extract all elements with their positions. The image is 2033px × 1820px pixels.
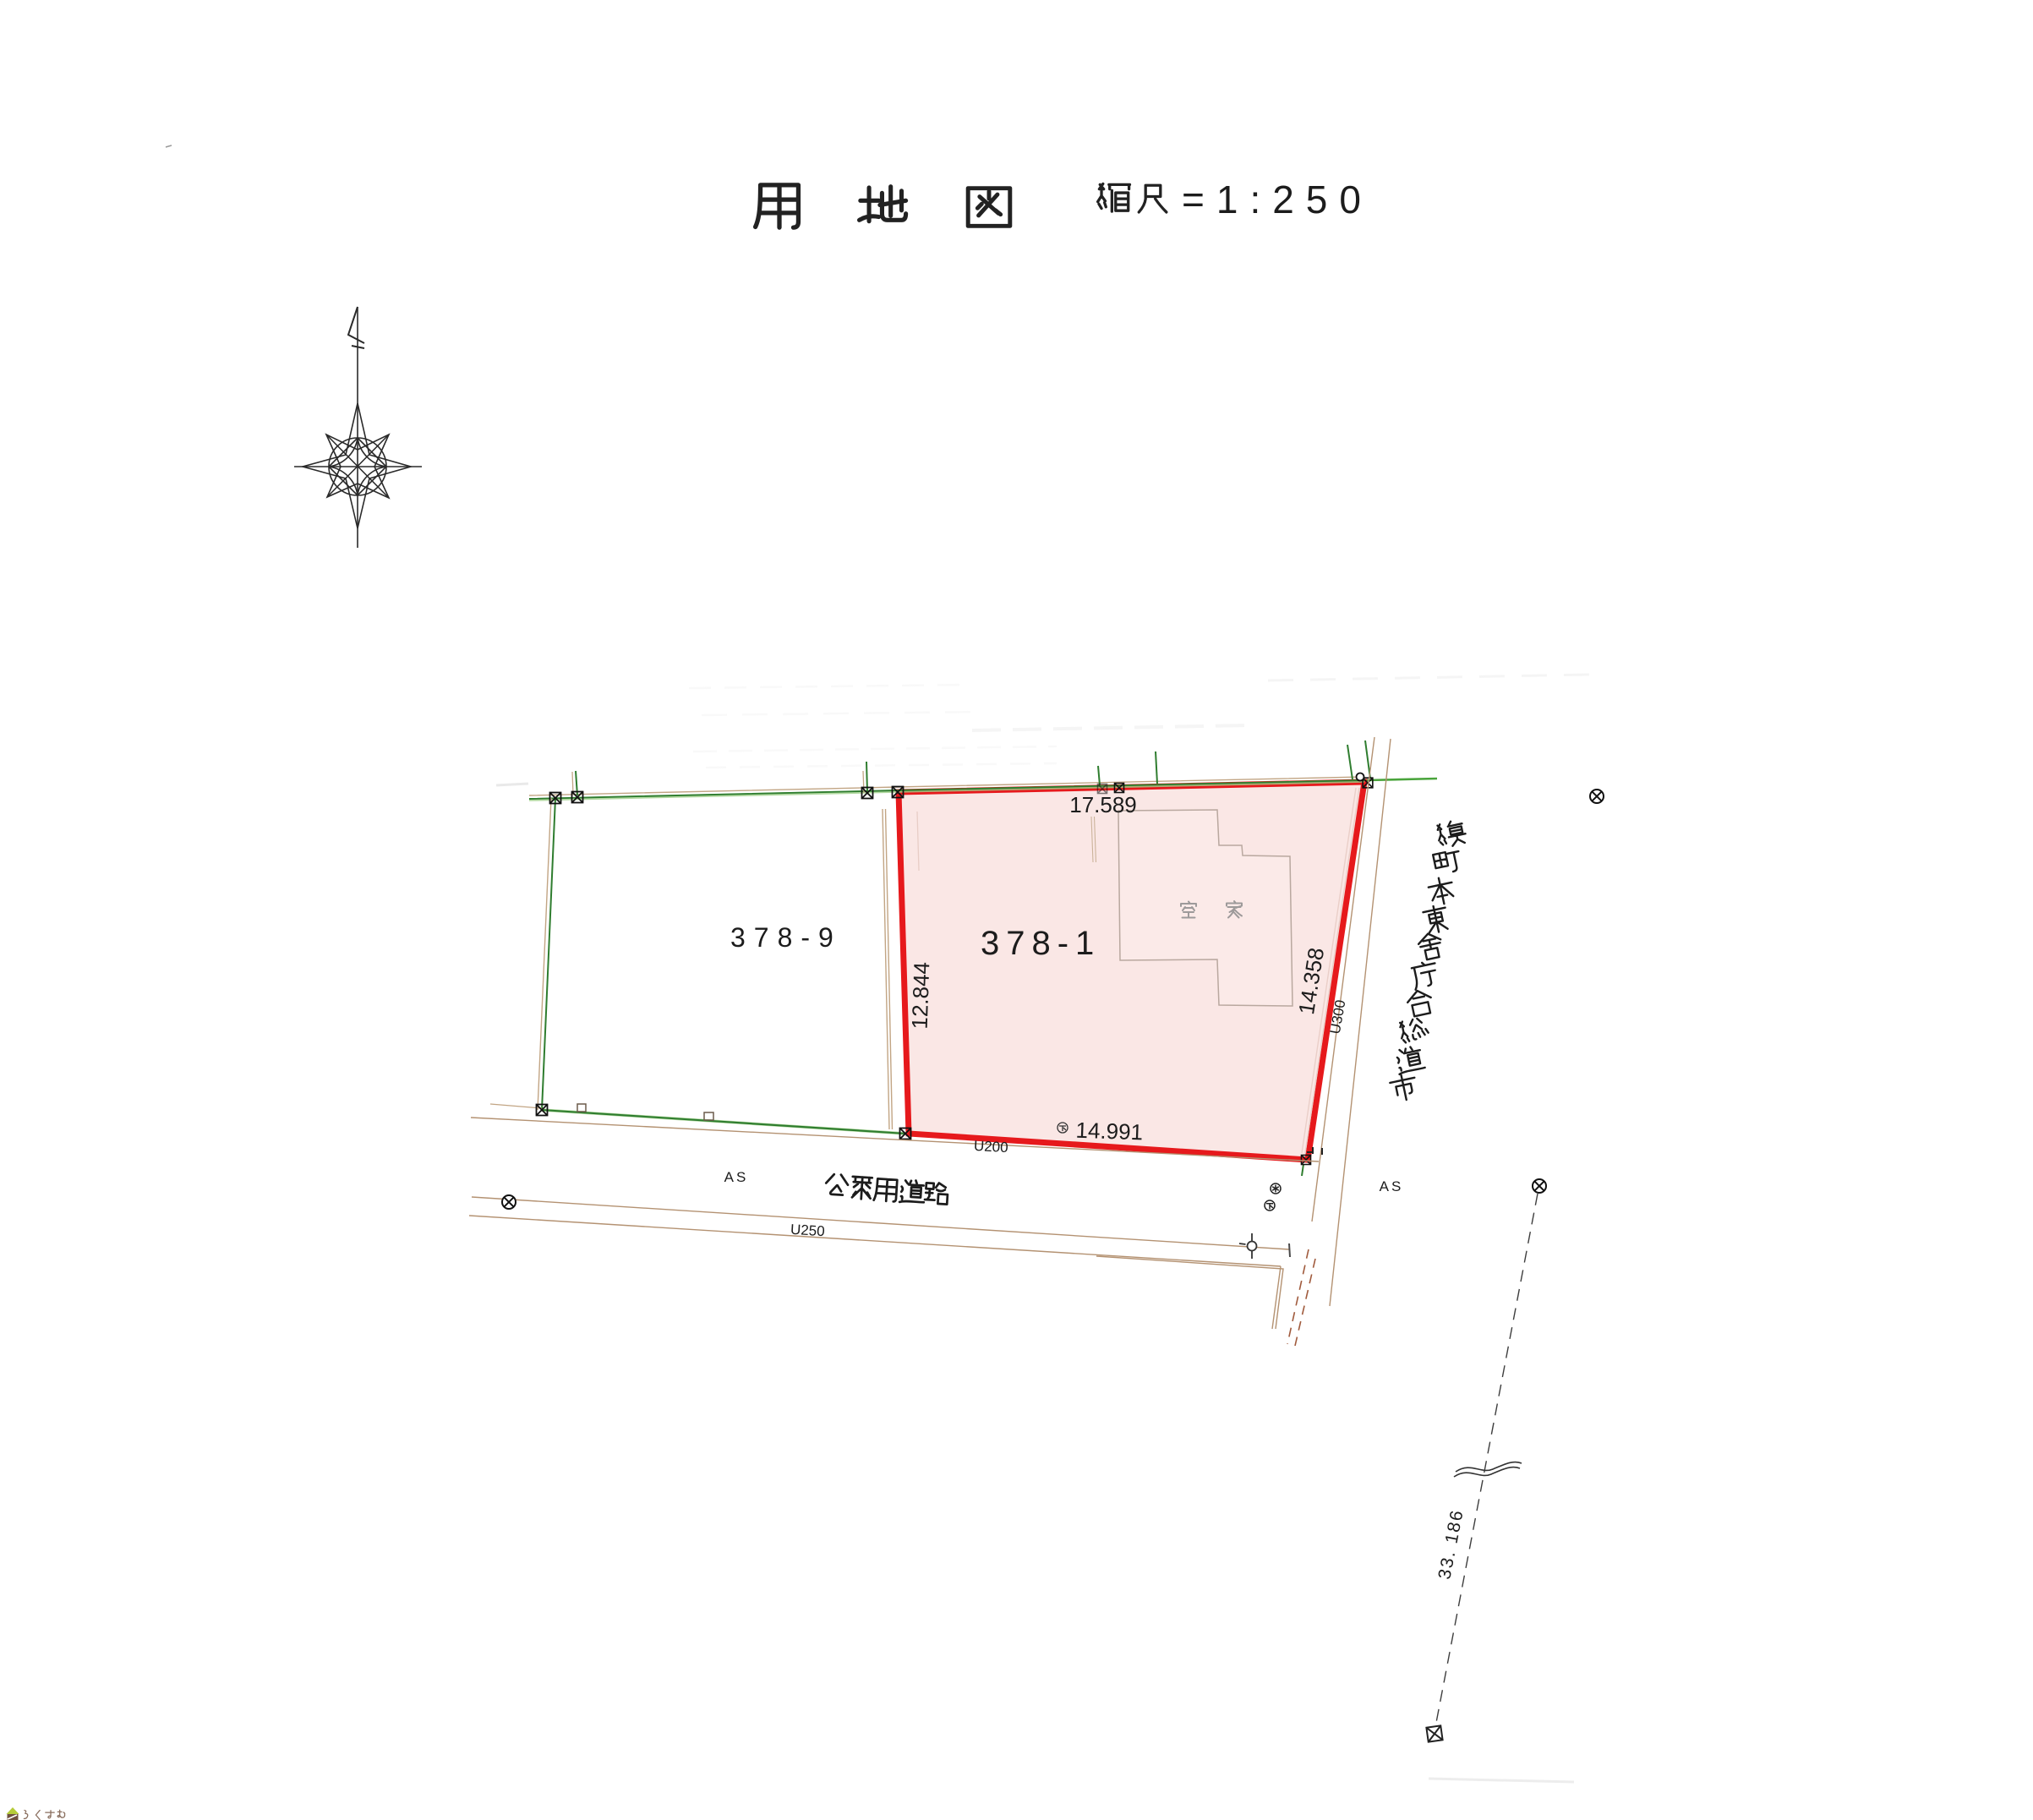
svg-text:378-1: 378-1 <box>981 925 1101 962</box>
svg-text:=1:250: =1:250 <box>1182 178 1373 221</box>
svg-text:U200: U200 <box>973 1138 1008 1156</box>
svg-text:AS: AS <box>724 1169 749 1185</box>
svg-text:U250: U250 <box>790 1222 825 1239</box>
svg-text:378-9: 378-9 <box>730 922 842 953</box>
svg-text:AS: AS <box>1380 1178 1404 1194</box>
svg-text:12.844: 12.844 <box>907 961 935 1030</box>
svg-text:14.991: 14.991 <box>1075 1118 1144 1145</box>
svg-text:17.589: 17.589 <box>1069 792 1137 817</box>
